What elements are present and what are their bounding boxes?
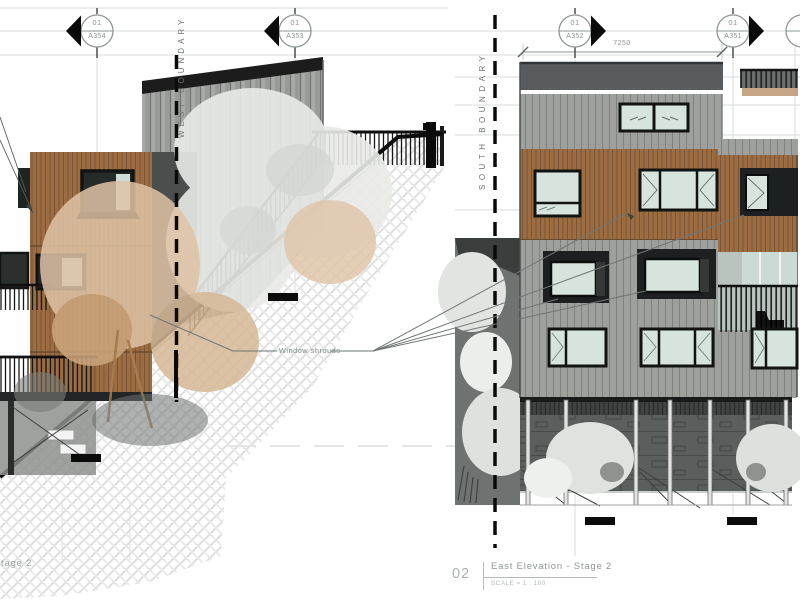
window-low-b	[641, 329, 713, 366]
section-marker-ref: 01 A354	[79, 19, 115, 41]
section-marker-ref: 01 A353	[277, 19, 313, 41]
window-low-c	[752, 329, 797, 368]
marker-sheet: A352	[557, 33, 593, 41]
balcony	[718, 252, 798, 332]
window-brown-right-shroud	[740, 168, 798, 216]
marker-number: 01	[79, 19, 115, 27]
section-marker-ref: 01 A352	[557, 19, 593, 41]
undercroft	[520, 397, 800, 508]
clerestory-window	[620, 104, 688, 131]
section-marker-ref: 01 A351	[715, 19, 751, 41]
section-marker-icon-partial	[786, 15, 800, 47]
window-brown-left	[535, 171, 580, 216]
elevation-linework	[0, 0, 800, 600]
south-boundary-label: SOUTH BOUNDARY	[478, 14, 487, 190]
subfloor	[0, 401, 96, 475]
window-shroud-b	[637, 249, 716, 299]
west-boundary-label: WEST BOUNDARY	[177, 12, 186, 138]
marker-number: 01	[557, 19, 593, 27]
window-edge	[0, 253, 28, 288]
spot-levels-right	[585, 517, 757, 525]
building-east	[520, 62, 800, 508]
boundary-post	[174, 350, 178, 398]
right-view-scale: SCALE = 1 : 100	[491, 580, 546, 587]
west-elevation-view	[0, 55, 458, 599]
marker-number: 01	[277, 19, 313, 27]
drawing-sheet: WEST BOUNDARY SOUTH BOUNDARY 01 A354 01 …	[0, 0, 800, 600]
window-low-a	[549, 329, 606, 366]
dimension-text: 7250	[600, 40, 644, 47]
left-view-title-partial: tage 2	[1, 558, 32, 569]
marker-sheet: A354	[79, 33, 115, 41]
window-brown-centre	[640, 170, 717, 210]
right-view-number: 02	[452, 566, 470, 582]
window-shrouds-annotation: Window shrouds	[279, 346, 341, 355]
east-elevation-view	[438, 15, 800, 548]
marker-number: 01	[715, 19, 751, 27]
right-view-title: East Elevation - Stage 2	[491, 561, 612, 572]
marker-sheet: A351	[715, 33, 751, 41]
marker-sheet: A353	[277, 33, 313, 41]
